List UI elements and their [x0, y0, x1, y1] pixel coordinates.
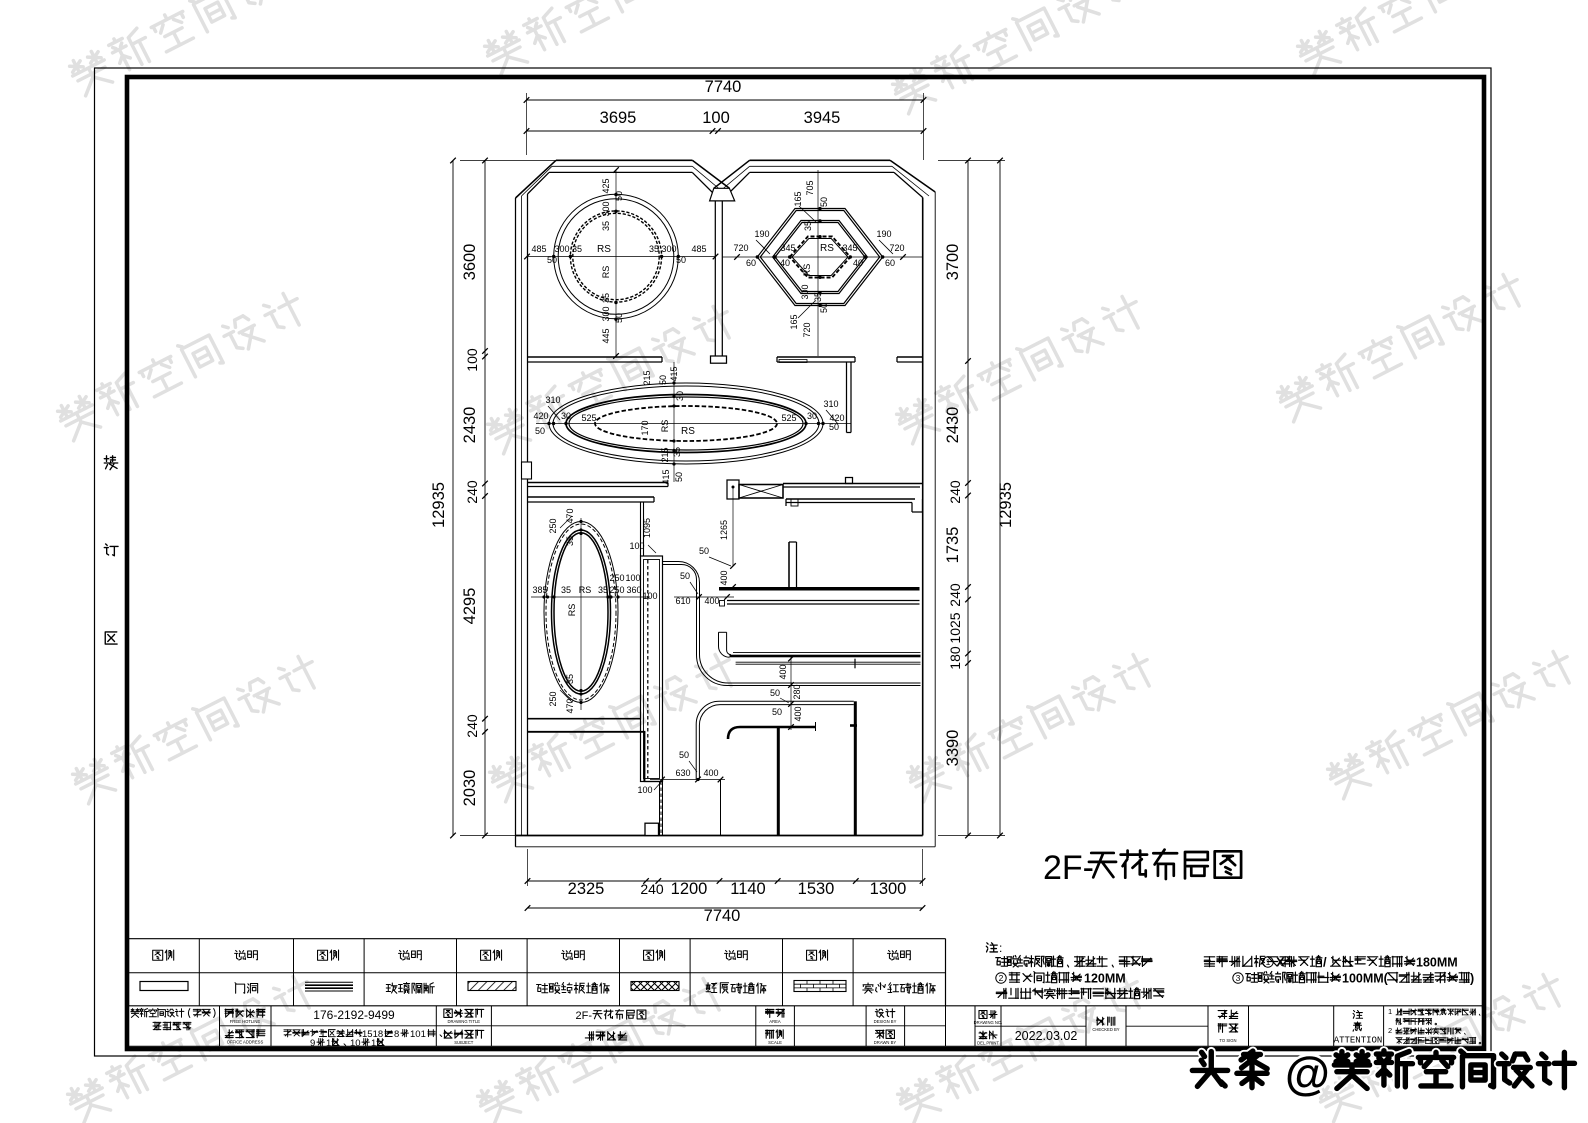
- svg-text:50: 50: [819, 303, 829, 313]
- svg-text:400: 400: [704, 596, 719, 606]
- svg-text:50: 50: [770, 688, 780, 698]
- svg-text:120MM: 120MM: [1084, 972, 1126, 986]
- svg-text:345: 345: [842, 243, 857, 253]
- svg-text:40: 40: [853, 258, 863, 268]
- svg-text:445: 445: [601, 328, 611, 343]
- svg-text:610: 610: [675, 596, 690, 606]
- svg-text:3390: 3390: [944, 730, 962, 767]
- svg-text:30: 30: [561, 411, 571, 421]
- svg-text:1: 1: [1266, 957, 1271, 967]
- svg-text:1: 1: [326, 1038, 331, 1049]
- svg-text:3945: 3945: [804, 109, 841, 127]
- svg-text:35: 35: [672, 447, 682, 457]
- svg-text:DRAWING TITLE: DRAWING TITLE: [448, 1019, 481, 1024]
- svg-text:300: 300: [800, 284, 810, 299]
- svg-text:400: 400: [778, 664, 788, 679]
- svg-text:3600: 3600: [461, 244, 479, 281]
- svg-text:310: 310: [545, 395, 560, 405]
- svg-text:240: 240: [640, 881, 664, 897]
- svg-text:12935: 12935: [430, 482, 448, 528]
- svg-text:400: 400: [793, 706, 803, 721]
- svg-text:720: 720: [802, 322, 812, 337]
- svg-text:360: 360: [626, 585, 641, 595]
- svg-text:SCALE: SCALE: [768, 1040, 782, 1045]
- svg-text:415: 415: [669, 366, 679, 381]
- svg-text:35: 35: [601, 221, 611, 231]
- svg-text:DRAWN BY: DRAWN BY: [874, 1040, 897, 1045]
- svg-text:165: 165: [789, 314, 799, 329]
- svg-text:/: /: [1323, 955, 1327, 970]
- svg-text:1: 1: [1388, 1007, 1392, 1016]
- svg-text:1735: 1735: [944, 527, 962, 564]
- svg-text:240: 240: [947, 583, 963, 607]
- svg-text:1265: 1265: [719, 520, 729, 540]
- svg-text:525: 525: [581, 413, 596, 423]
- svg-text:250: 250: [548, 691, 558, 706]
- svg-text:470: 470: [565, 508, 575, 523]
- svg-text:RS: RS: [597, 244, 611, 255]
- svg-text:250: 250: [609, 585, 624, 595]
- svg-text:7740: 7740: [705, 78, 742, 96]
- svg-text:50: 50: [699, 546, 709, 556]
- svg-text:OFFICE ADDRESS: OFFICE ADDRESS: [227, 1040, 264, 1045]
- svg-text:7740: 7740: [704, 907, 741, 925]
- svg-text:50: 50: [614, 313, 624, 323]
- svg-text:40: 40: [780, 258, 790, 268]
- svg-text:50: 50: [547, 255, 557, 265]
- svg-text:1200: 1200: [671, 880, 708, 898]
- svg-text:300: 300: [554, 244, 569, 254]
- svg-text:2F-: 2F-: [576, 1010, 593, 1022]
- svg-text:300: 300: [601, 201, 611, 216]
- svg-text:2430: 2430: [461, 407, 479, 444]
- svg-text:2: 2: [1388, 1026, 1392, 1035]
- svg-text:100: 100: [625, 573, 640, 583]
- svg-text:35: 35: [565, 674, 575, 684]
- svg-text:215: 215: [660, 447, 670, 462]
- svg-text:FREE HOTLINE: FREE HOTLINE: [230, 1019, 261, 1024]
- svg-text:RS: RS: [567, 604, 577, 617]
- svg-text:X: X: [1276, 955, 1285, 970]
- svg-text:240: 240: [464, 714, 480, 738]
- svg-text:RS: RS: [601, 266, 611, 279]
- svg-text:35: 35: [601, 293, 611, 303]
- svg-text:60: 60: [746, 258, 756, 268]
- svg-text:310: 310: [823, 399, 838, 409]
- svg-text:100: 100: [637, 785, 652, 795]
- svg-text:TO SIGN: TO SIGN: [1219, 1038, 1236, 1043]
- svg-text:CHECKED BY: CHECKED BY: [1092, 1027, 1119, 1032]
- svg-text:50: 50: [676, 255, 686, 265]
- svg-text:2F-: 2F-: [1043, 849, 1094, 887]
- svg-text:35: 35: [598, 585, 608, 595]
- svg-text:420: 420: [533, 411, 548, 421]
- svg-text:@: @: [1285, 1047, 1330, 1099]
- svg-text:RS: RS: [660, 420, 670, 433]
- svg-text:400: 400: [703, 768, 718, 778]
- svg-text:720: 720: [889, 243, 904, 253]
- svg-text:1095: 1095: [642, 518, 652, 538]
- svg-text:35: 35: [649, 244, 659, 254]
- svg-text:415: 415: [661, 469, 671, 484]
- svg-text:525: 525: [781, 413, 796, 423]
- svg-text:2: 2: [999, 973, 1004, 983]
- svg-text:30: 30: [807, 411, 817, 421]
- svg-text:50: 50: [829, 422, 839, 432]
- svg-text:170: 170: [640, 420, 650, 435]
- svg-text:100: 100: [464, 348, 480, 372]
- svg-text:RS: RS: [802, 264, 812, 277]
- svg-text:100: 100: [642, 591, 657, 601]
- svg-text:385: 385: [532, 585, 547, 595]
- svg-text:300: 300: [601, 306, 611, 321]
- svg-text:180MM: 180MM: [1416, 956, 1458, 970]
- svg-text:35: 35: [803, 221, 813, 231]
- svg-text:8: 8: [394, 1029, 399, 1040]
- svg-text:400: 400: [719, 570, 729, 585]
- svg-text:50: 50: [658, 375, 668, 385]
- svg-text:35: 35: [813, 292, 823, 302]
- svg-text:DRAWING NO.: DRAWING NO.: [974, 1020, 1003, 1025]
- svg-text:485: 485: [531, 244, 546, 254]
- svg-text:250: 250: [548, 518, 558, 533]
- svg-text:50: 50: [614, 191, 624, 201]
- svg-text:2030: 2030: [461, 770, 479, 807]
- svg-text:100: 100: [629, 541, 644, 551]
- svg-text:35: 35: [565, 536, 575, 546]
- svg-text:4295: 4295: [461, 588, 479, 625]
- svg-text:280: 280: [792, 684, 802, 699]
- svg-text:9: 9: [310, 1038, 315, 1049]
- svg-text:215: 215: [642, 370, 652, 385]
- svg-text:250: 250: [609, 573, 624, 583]
- svg-text:176-2192-9499: 176-2192-9499: [313, 1008, 395, 1022]
- svg-text:50: 50: [680, 571, 690, 581]
- svg-text:630: 630: [675, 768, 690, 778]
- svg-text::: :: [999, 941, 1002, 955]
- svg-text:): ): [1470, 972, 1474, 986]
- svg-text:50: 50: [535, 426, 545, 436]
- svg-text:470: 470: [565, 698, 575, 713]
- svg-text:3: 3: [1236, 973, 1241, 983]
- svg-text:1140: 1140: [730, 880, 765, 898]
- svg-text:1300: 1300: [870, 880, 907, 898]
- svg-text:240: 240: [464, 480, 480, 504]
- svg-text:50: 50: [819, 197, 829, 207]
- svg-text:180: 180: [947, 646, 963, 670]
- svg-text:60: 60: [885, 258, 895, 268]
- svg-text:AREA: AREA: [769, 1019, 781, 1024]
- svg-text:100: 100: [702, 109, 730, 127]
- svg-text:345: 345: [780, 243, 795, 253]
- svg-text:1025: 1025: [947, 612, 963, 643]
- svg-text:2430: 2430: [944, 407, 962, 444]
- svg-text:3695: 3695: [600, 109, 637, 127]
- svg-text:240: 240: [947, 480, 963, 504]
- svg-text:ATTENTION: ATTENTION: [1334, 1035, 1383, 1045]
- svg-text:425: 425: [601, 178, 611, 193]
- svg-text:300: 300: [661, 244, 676, 254]
- svg-text:50: 50: [679, 750, 689, 760]
- svg-text:705: 705: [805, 180, 815, 195]
- svg-text:RS: RS: [820, 243, 834, 254]
- svg-text:2022.03.02: 2022.03.02: [1015, 1029, 1078, 1043]
- svg-text:190: 190: [754, 229, 769, 239]
- svg-text:DEL.PRINT: DEL.PRINT: [977, 1041, 999, 1046]
- svg-text:190: 190: [876, 229, 891, 239]
- svg-text:SUBJECT: SUBJECT: [454, 1040, 474, 1045]
- svg-text:165: 165: [793, 191, 803, 206]
- svg-text:35: 35: [572, 244, 582, 254]
- svg-text:100MM(: 100MM(: [1342, 972, 1389, 986]
- svg-text:2325: 2325: [568, 880, 605, 898]
- svg-text:DESIGN BY: DESIGN BY: [874, 1019, 897, 1024]
- svg-text:1: 1: [371, 1038, 376, 1049]
- svg-text:1530: 1530: [798, 880, 835, 898]
- svg-text:50: 50: [772, 707, 782, 717]
- svg-text:RS: RS: [579, 585, 592, 595]
- svg-text:30: 30: [675, 391, 685, 401]
- svg-text:50: 50: [674, 472, 684, 482]
- svg-text:12935: 12935: [997, 482, 1015, 528]
- svg-text:3700: 3700: [944, 244, 962, 281]
- svg-text:35: 35: [561, 585, 571, 595]
- svg-text:101: 101: [410, 1029, 426, 1040]
- svg-text:720: 720: [733, 243, 748, 253]
- svg-text:10: 10: [350, 1038, 361, 1049]
- svg-text:RS: RS: [681, 426, 695, 437]
- svg-text:485: 485: [691, 244, 706, 254]
